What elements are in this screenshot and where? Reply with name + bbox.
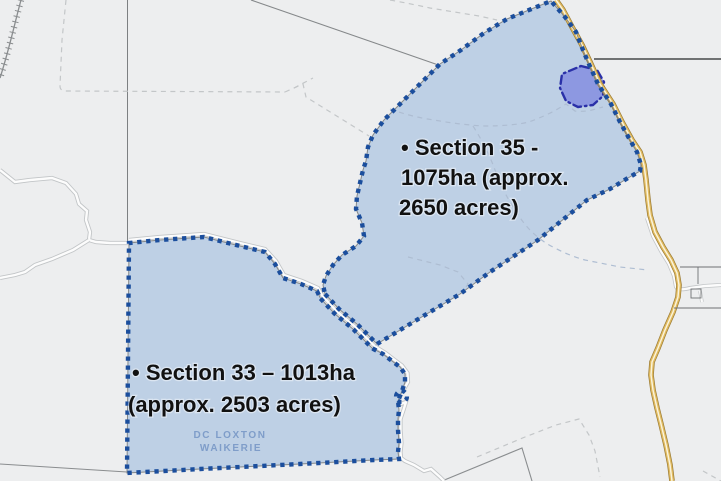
- svg-text:1075ha (approx.: 1075ha (approx.: [401, 165, 569, 190]
- svg-text:WAIKERIE: WAIKERIE: [200, 443, 262, 454]
- svg-text:DC LOXTON: DC LOXTON: [193, 430, 266, 441]
- svg-text:• Section 33 – 1013ha: • Section 33 – 1013ha: [132, 360, 356, 385]
- svg-text:• Section 35 -: • Section 35 -: [401, 135, 538, 160]
- svg-text:(approx. 2503 acres): (approx. 2503 acres): [128, 392, 341, 417]
- svg-text:2650 acres): 2650 acres): [399, 195, 519, 220]
